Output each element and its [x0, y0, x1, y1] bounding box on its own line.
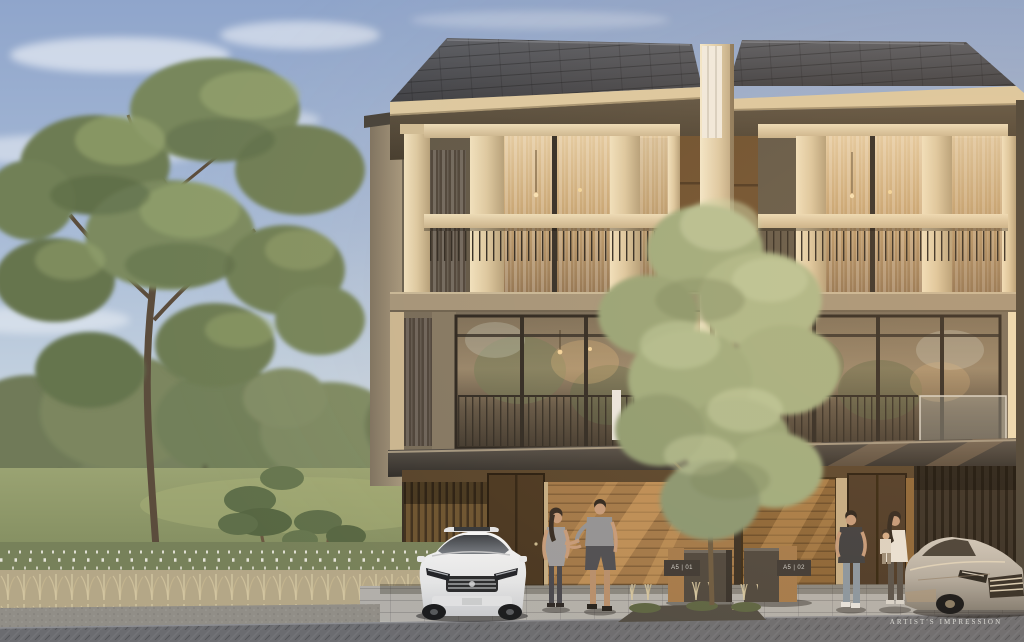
- scene-canvas: [0, 0, 1024, 642]
- rendering-image: A5 | 01 A5 | 02 ARTIST'S IMPRESSION: [0, 0, 1024, 642]
- unit-plate-label-02: A5 | 02: [777, 560, 811, 576]
- unit-plate-label-01: A5 | 01: [664, 560, 700, 576]
- warm-light-overlay: [0, 0, 1024, 642]
- artists-impression-caption: ARTIST'S IMPRESSION: [872, 618, 1020, 630]
